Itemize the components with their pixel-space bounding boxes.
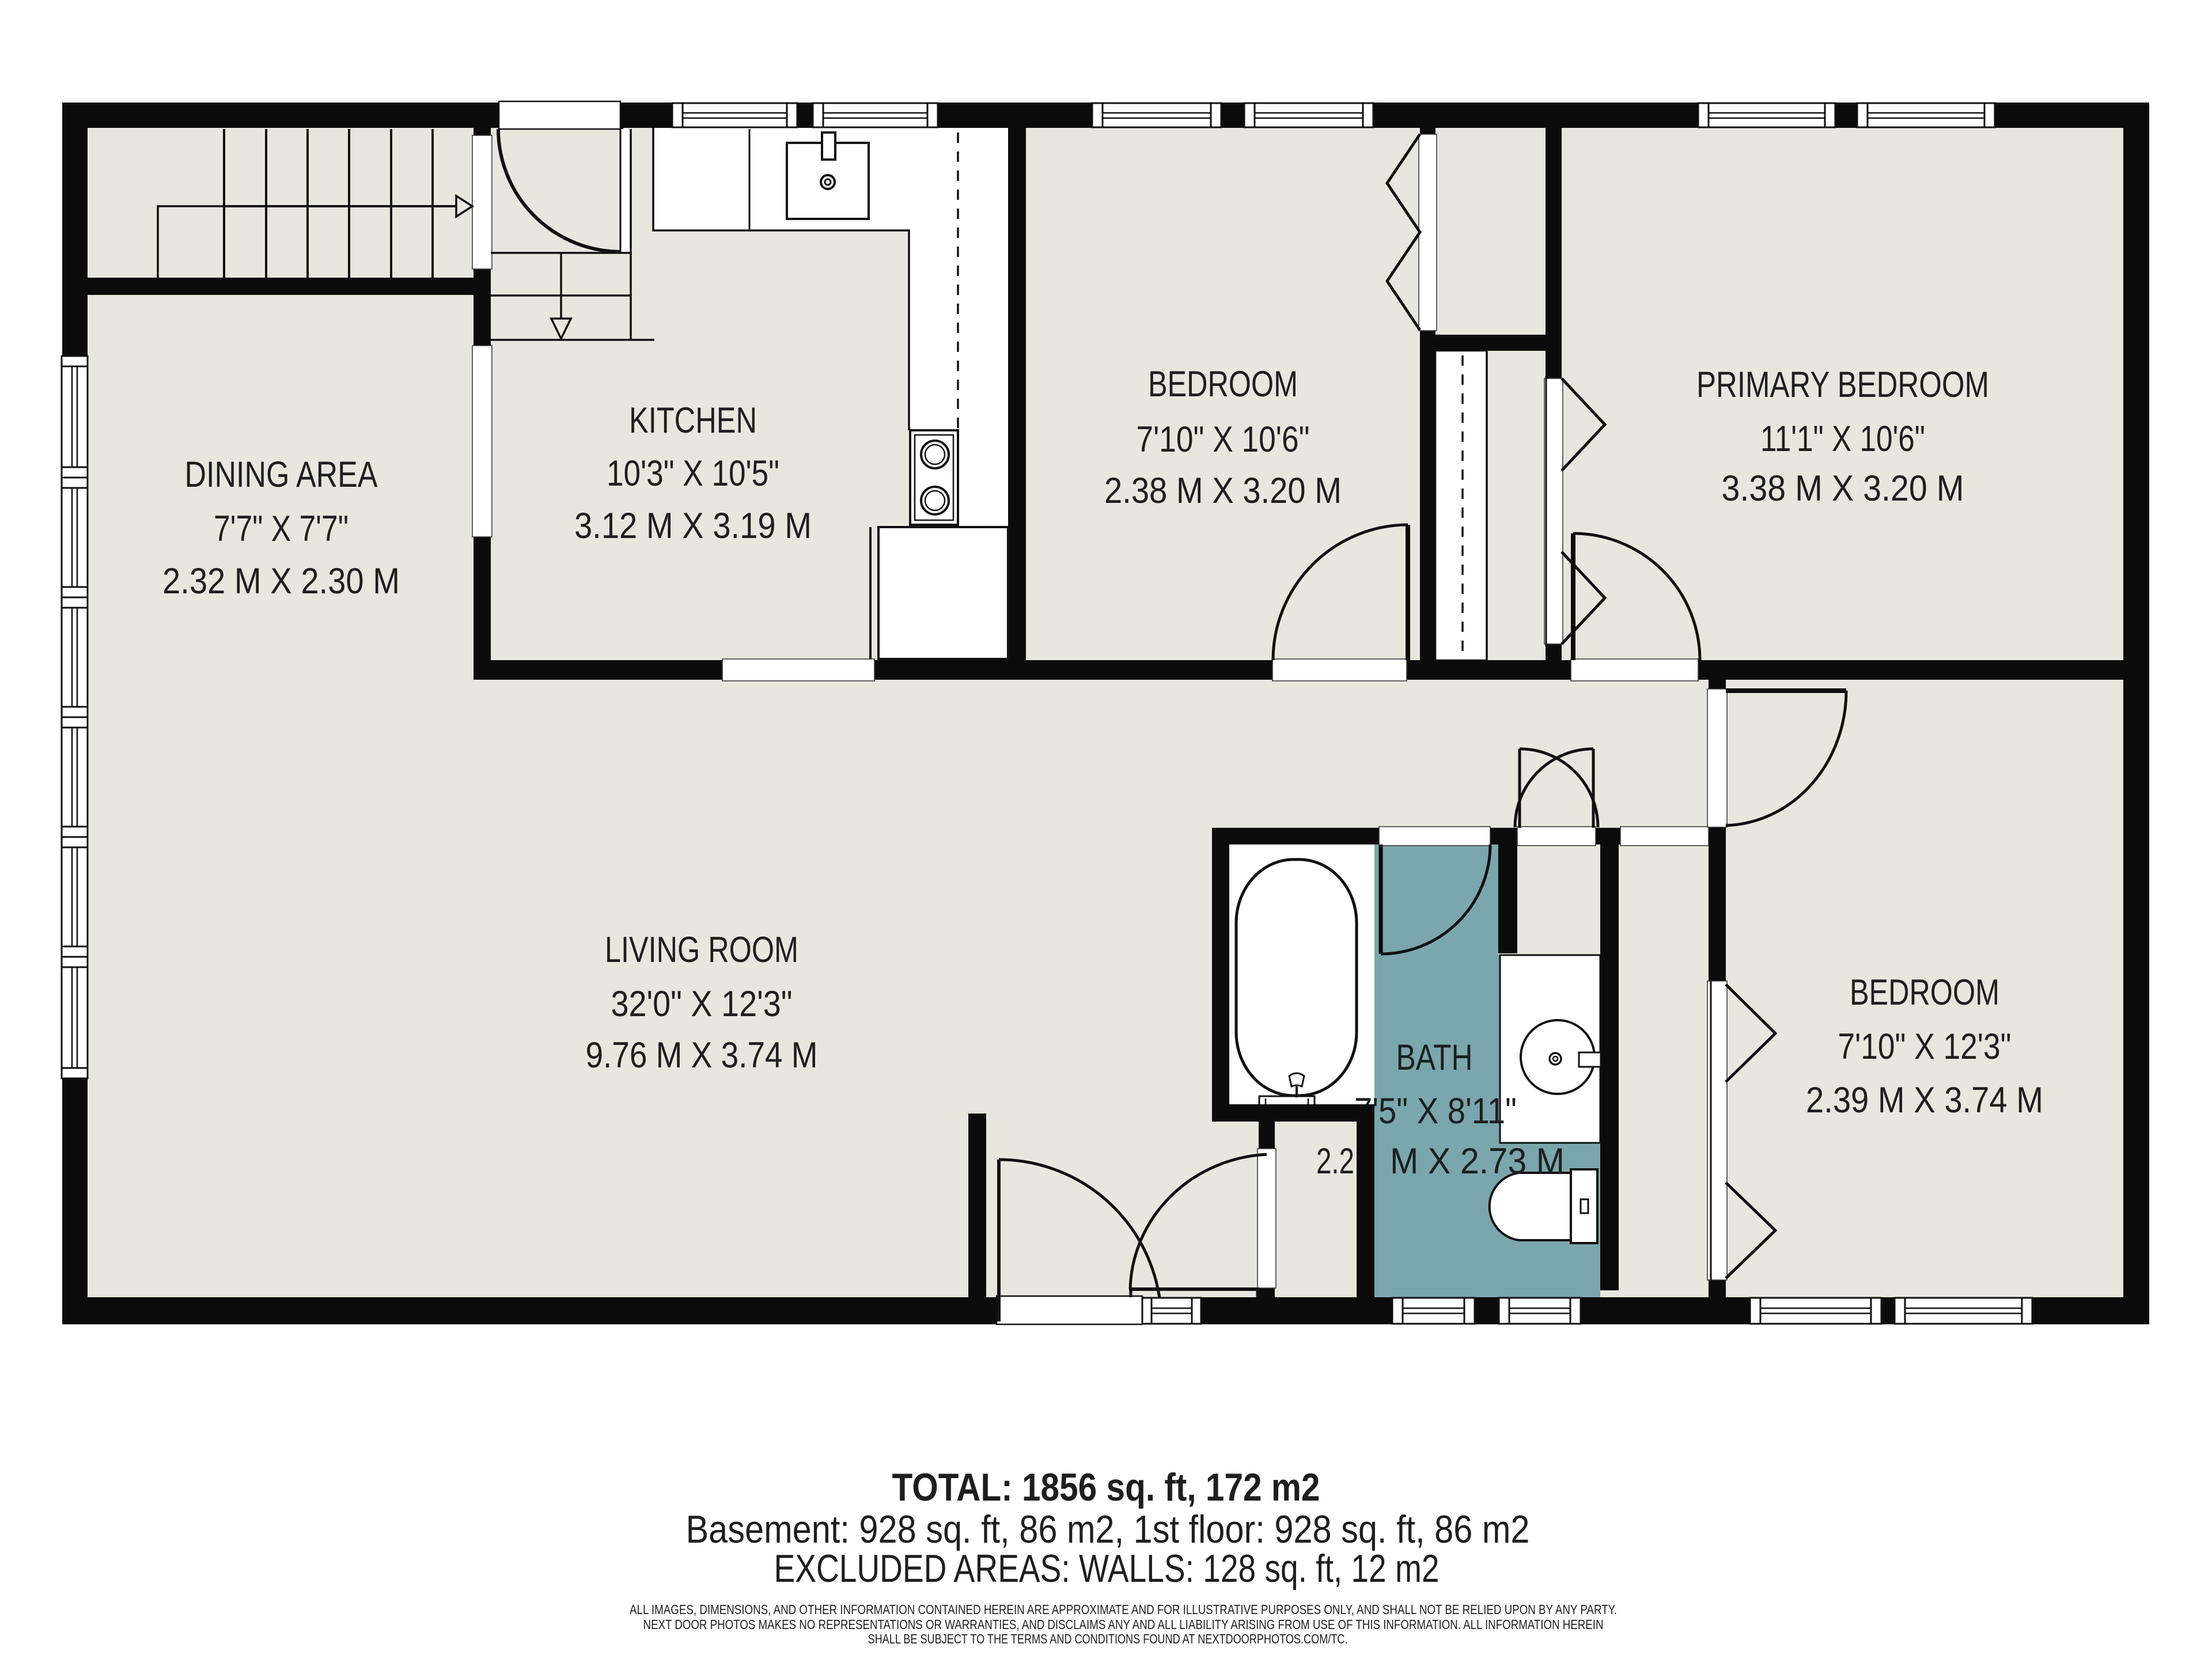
svg-text:BATH: BATH xyxy=(1396,1037,1473,1078)
svg-text:7'7" X 7'7": 7'7" X 7'7" xyxy=(214,509,349,549)
svg-text:32'0" X 12'3": 32'0" X 12'3" xyxy=(611,984,793,1024)
svg-text:11'1" X 10'6": 11'1" X 10'6" xyxy=(1760,419,1925,459)
svg-text:2.39 M X 3.74 M: 2.39 M X 3.74 M xyxy=(1806,1080,2043,1120)
svg-text:M X 2.73 M: M X 2.73 M xyxy=(1390,1141,1565,1181)
svg-text:9.76 M X 3.74 M: 9.76 M X 3.74 M xyxy=(586,1035,818,1075)
svg-text:NEXT DOOR PHOTOS MAKES NO REPR: NEXT DOOR PHOTOS MAKES NO REPRESENTATION… xyxy=(643,1617,1604,1632)
svg-text:LIVING ROOM: LIVING ROOM xyxy=(605,930,798,970)
svg-text:7'5" X 8'11": 7'5" X 8'11" xyxy=(1354,1091,1517,1131)
svg-text:Basement: 928 sq. ft, 86 m2, 1: Basement: 928 sq. ft, 86 m2, 1st floor: … xyxy=(686,1508,1530,1551)
svg-text:7'10" X 12'3": 7'10" X 12'3" xyxy=(1838,1027,2012,1067)
svg-text:3.12 M X 3.19 M: 3.12 M X 3.19 M xyxy=(574,506,812,546)
svg-text:2.38 M X 3.20 M: 2.38 M X 3.20 M xyxy=(1104,471,1342,511)
svg-text:SHALL BE SUBJECT TO THE TERMS: SHALL BE SUBJECT TO THE TERMS AND CONDIT… xyxy=(868,1631,1348,1646)
svg-text:TOTAL: 1856 sq. ft, 172 m2: TOTAL: 1856 sq. ft, 172 m2 xyxy=(892,1465,1320,1509)
svg-text:DINING AREA: DINING AREA xyxy=(185,454,378,495)
svg-text:EXCLUDED AREAS: WALLS: 128 sq.: EXCLUDED AREAS: WALLS: 128 sq. ft, 12 m2 xyxy=(774,1547,1440,1590)
svg-text:PRIMARY BEDROOM: PRIMARY BEDROOM xyxy=(1696,365,1989,405)
svg-text:3.38 M X 3.20 M: 3.38 M X 3.20 M xyxy=(1722,468,1964,509)
svg-text:10'3" X 10'5": 10'3" X 10'5" xyxy=(607,453,779,494)
svg-text:7'10" X 10'6": 7'10" X 10'6" xyxy=(1137,419,1310,460)
svg-text:ALL IMAGES, DIMENSIONS, AND OT: ALL IMAGES, DIMENSIONS, AND OTHER INFORM… xyxy=(630,1602,1617,1617)
svg-text:BEDROOM: BEDROOM xyxy=(1148,364,1298,404)
svg-text:KITCHEN: KITCHEN xyxy=(629,400,757,441)
svg-text:2.2: 2.2 xyxy=(1316,1141,1354,1181)
svg-text:2.32 M X 2.30 M: 2.32 M X 2.30 M xyxy=(162,561,400,601)
svg-text:BEDROOM: BEDROOM xyxy=(1850,972,1999,1013)
